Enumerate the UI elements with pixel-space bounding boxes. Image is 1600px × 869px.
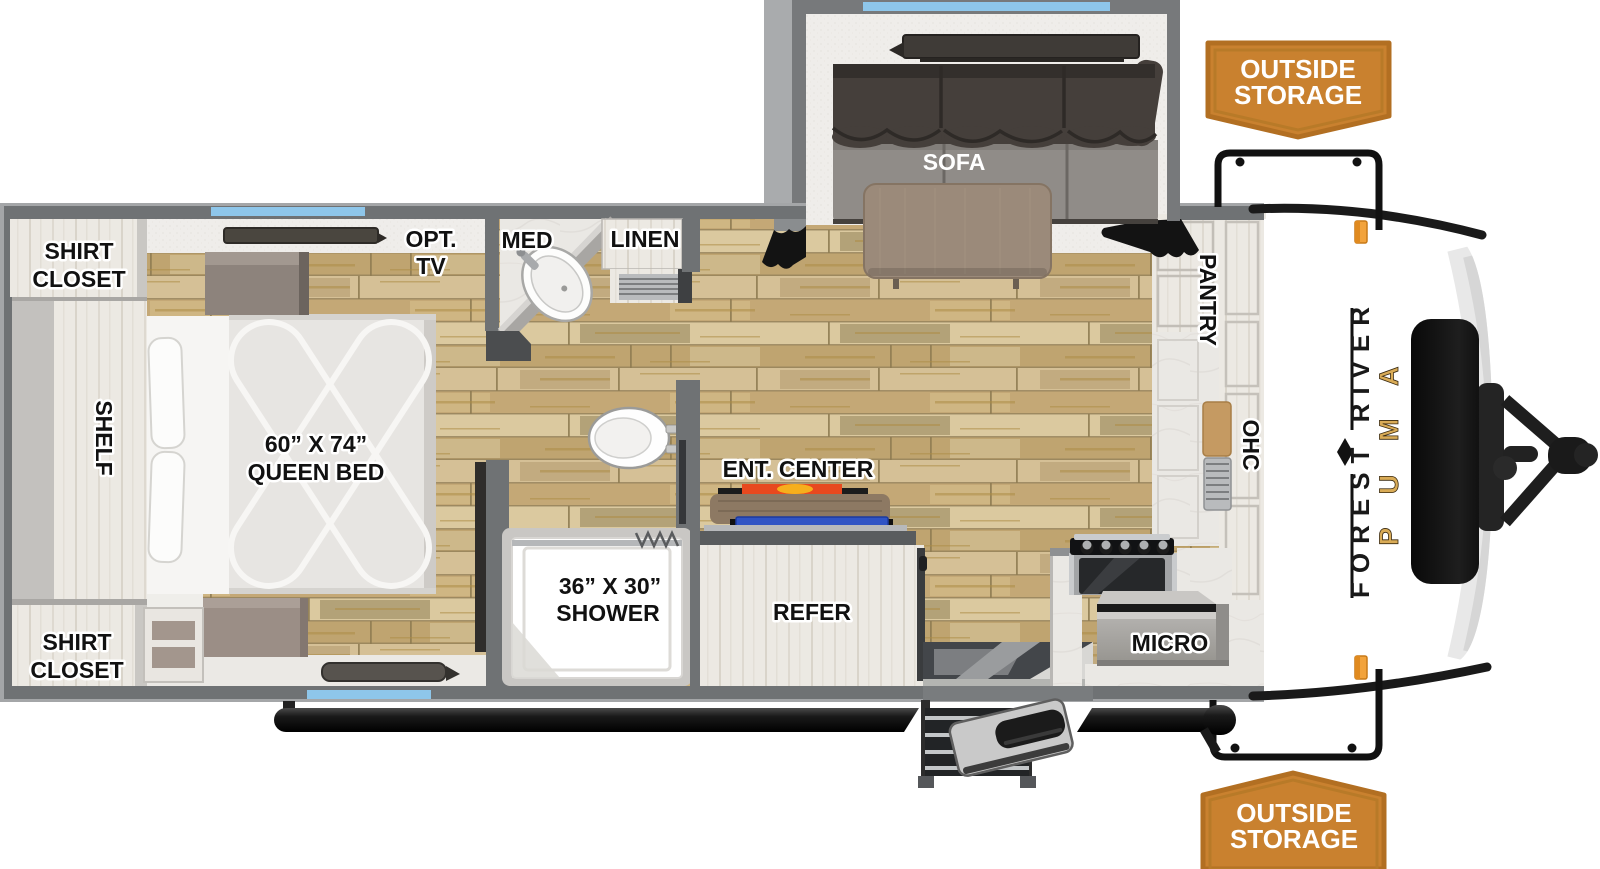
svg-text:OHC: OHC <box>1238 419 1264 470</box>
svg-text:MICRO: MICRO <box>1132 630 1209 656</box>
svg-text:CLOSET: CLOSET <box>30 657 123 683</box>
svg-text:36” X 30”: 36” X 30” <box>559 573 661 599</box>
svg-text:PANTRY: PANTRY <box>1195 254 1221 346</box>
svg-text:SOFA: SOFA <box>923 149 986 175</box>
svg-text:LINEN: LINEN <box>611 226 680 252</box>
svg-text:SHOWER: SHOWER <box>556 600 660 626</box>
svg-text:60” X 74”: 60” X 74” <box>265 431 367 457</box>
svg-text:ENT. CENTER: ENT. CENTER <box>723 456 874 482</box>
svg-text:STORAGE: STORAGE <box>1230 824 1358 854</box>
svg-text:SHELF: SHELF <box>91 400 117 475</box>
svg-text:REFER: REFER <box>773 599 851 625</box>
svg-text:SHIRT: SHIRT <box>43 629 112 655</box>
svg-text:SHIRT: SHIRT <box>45 238 114 264</box>
svg-text:TV: TV <box>416 253 446 279</box>
svg-text:CLOSET: CLOSET <box>32 266 125 292</box>
svg-text:QUEEN BED: QUEEN BED <box>248 459 385 485</box>
svg-text:OPT.: OPT. <box>405 226 456 252</box>
svg-text:MED: MED <box>501 227 552 253</box>
svg-text:P U M A: P U M A <box>1374 351 1404 546</box>
svg-text:STORAGE: STORAGE <box>1234 80 1362 110</box>
svg-text:FOREST RIVER: FOREST RIVER <box>1345 306 1375 598</box>
